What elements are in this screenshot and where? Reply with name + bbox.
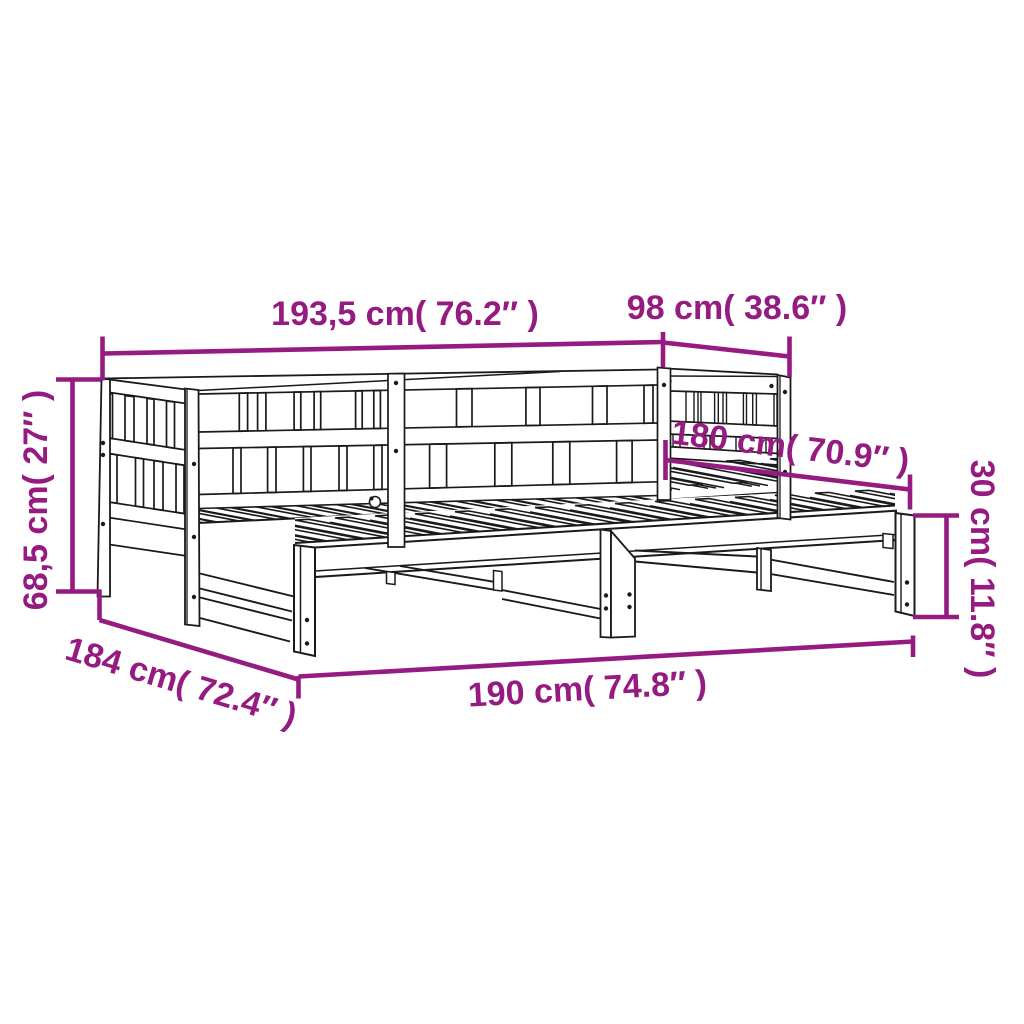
svg-text:193,5 cm( 76.2″ ): 193,5 cm( 76.2″ ) <box>271 295 539 333</box>
svg-text:30 cm( 11.8″ ): 30 cm( 11.8″ ) <box>963 460 1001 679</box>
svg-text:98 cm( 38.6″ ): 98 cm( 38.6″ ) <box>627 289 847 327</box>
svg-text:68,5 cm( 27″ ): 68,5 cm( 27″ ) <box>17 390 55 610</box>
svg-text:190 cm( 74.8″ ): 190 cm( 74.8″ ) <box>467 663 708 714</box>
